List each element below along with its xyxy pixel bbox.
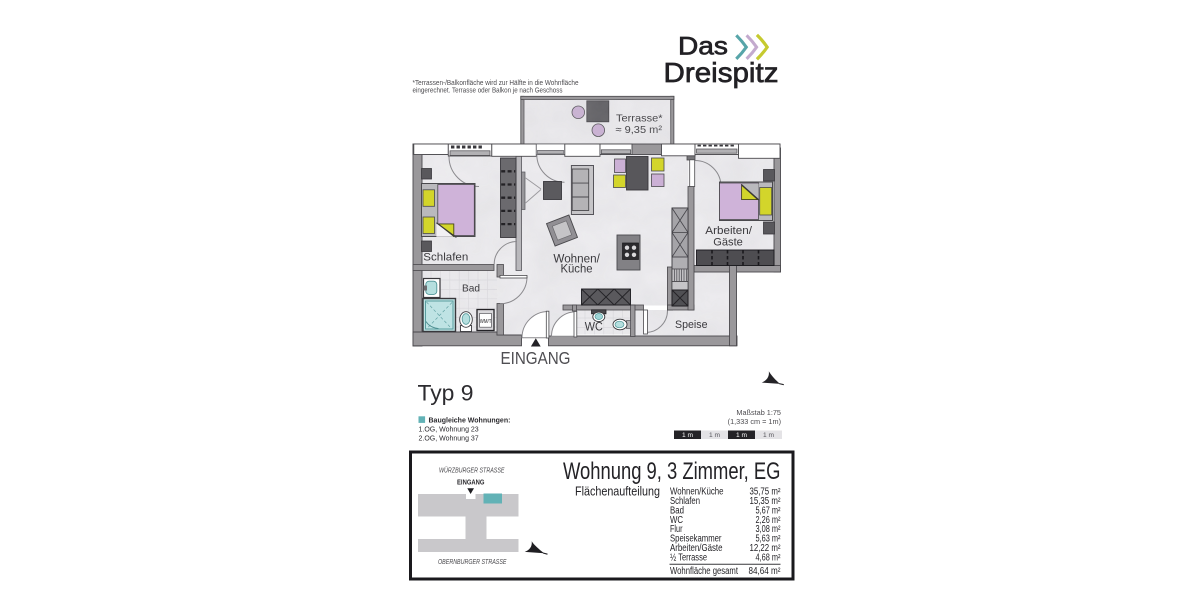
svg-text:WM/T: WM/T: [480, 319, 492, 325]
svg-text:Bad: Bad: [462, 282, 480, 294]
svg-text:1.OG, Wohnung 23: 1.OG, Wohnung 23: [419, 427, 479, 434]
svg-text:OBERNBURGER STRASSE: OBERNBURGER STRASSE: [438, 559, 507, 566]
svg-text:Flächenaufteilung: Flächenaufteilung: [575, 483, 660, 498]
svg-text:Arbeiten/: Arbeiten/: [705, 225, 753, 237]
svg-text:½ Terrasse: ½ Terrasse: [670, 552, 707, 563]
svg-text:Speise: Speise: [675, 319, 708, 331]
svg-text:4,68 m²: 4,68 m²: [756, 552, 782, 563]
svg-text:84,64 m²: 84,64 m²: [749, 566, 782, 577]
svg-text:*Terrassen-/Balkonfläche wird: *Terrassen-/Balkonfläche wird zur Hälfte…: [413, 80, 579, 87]
svg-text:1 m: 1 m: [709, 432, 720, 439]
svg-text:Typ 9: Typ 9: [418, 381, 474, 406]
svg-text:(1,333 cm = 1m): (1,333 cm = 1m): [728, 417, 781, 426]
svg-text:Dreispitz: Dreispitz: [664, 57, 779, 88]
svg-text:WC: WC: [585, 321, 603, 333]
svg-text:EINGANG: EINGANG: [501, 348, 571, 368]
svg-text:EINGANG: EINGANG: [457, 478, 485, 487]
svg-text:Wohnung 9, 3 Zimmer, EG: Wohnung 9, 3 Zimmer, EG: [563, 458, 781, 485]
svg-text:Schlafen: Schlafen: [423, 251, 468, 263]
svg-text:Gäste: Gäste: [713, 236, 743, 248]
svg-text:Maßstab 1:75: Maßstab 1:75: [736, 408, 781, 417]
svg-text:1 m: 1 m: [736, 432, 747, 439]
svg-text:eingerechnet. Terrasse oder Ba: eingerechnet. Terrasse oder Balkon je na…: [413, 87, 563, 94]
svg-text:2.OG, Wohnung 37: 2.OG, Wohnung 37: [419, 436, 479, 443]
svg-text:Wohnfläche gesamt: Wohnfläche gesamt: [670, 566, 738, 577]
svg-text:1 m: 1 m: [682, 432, 693, 439]
svg-text:Küche: Küche: [561, 262, 593, 276]
svg-text:Baugleiche Wohnungen:: Baugleiche Wohnungen:: [429, 418, 511, 425]
svg-text:WÜRZBURGER STRASSE: WÜRZBURGER STRASSE: [439, 467, 505, 475]
svg-text:1 m: 1 m: [763, 432, 774, 439]
